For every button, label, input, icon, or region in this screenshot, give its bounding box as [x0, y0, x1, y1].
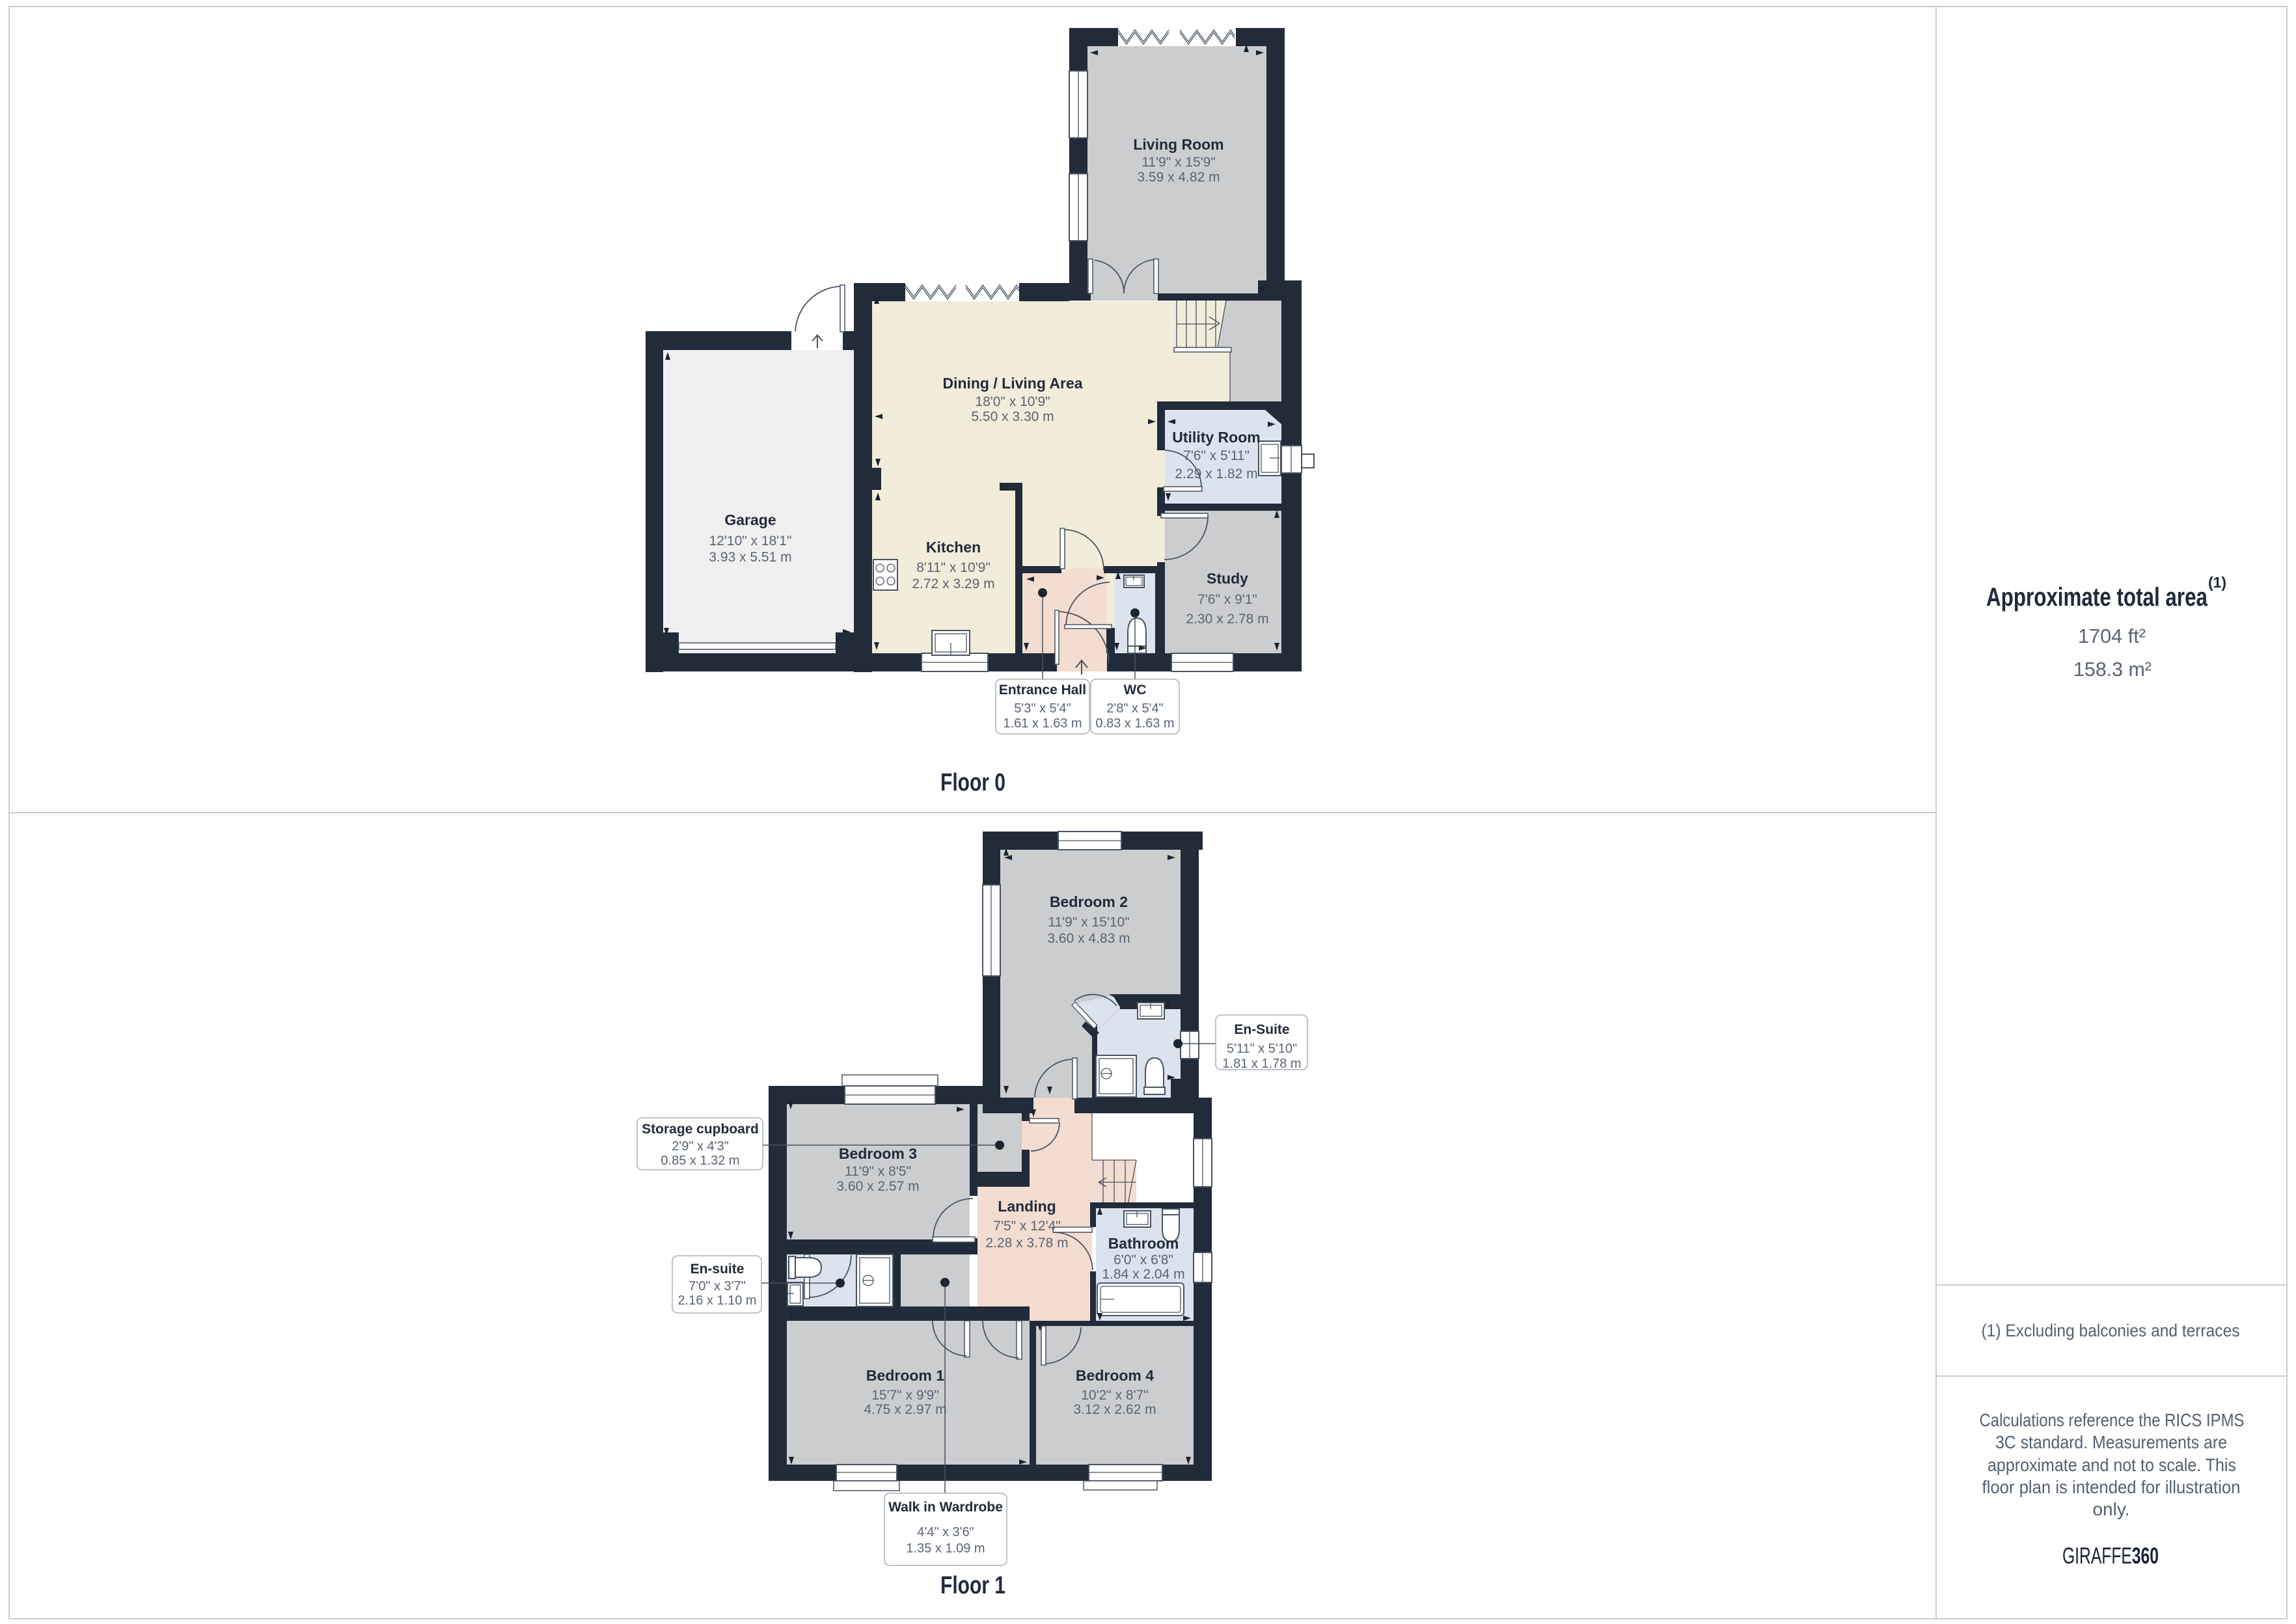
svg-text:5.50 x 3.30 m: 5.50 x 3.30 m — [971, 409, 1054, 424]
svg-text:5'3" x 5'4": 5'3" x 5'4" — [1014, 701, 1071, 716]
svg-text:Bedroom 4: Bedroom 4 — [1076, 1367, 1154, 1384]
svg-text:11'9" x 8'5": 11'9" x 8'5" — [845, 1164, 911, 1179]
svg-text:Approximate total area: Approximate total area — [1986, 583, 2208, 612]
svg-text:Garage: Garage — [724, 511, 776, 528]
svg-text:Storage cupboard: Storage cupboard — [642, 1122, 759, 1137]
svg-text:1.61 x 1.63 m: 1.61 x 1.63 m — [1003, 716, 1082, 731]
svg-text:7'5" x 12'4": 7'5" x 12'4" — [993, 1219, 1061, 1234]
svg-text:8'11" x 10'9": 8'11" x 10'9" — [916, 560, 991, 575]
svg-text:158.3 m²: 158.3 m² — [2073, 658, 2152, 681]
svg-text:7'0" x 3'7": 7'0" x 3'7" — [689, 1279, 745, 1293]
svg-text:Utility Room: Utility Room — [1172, 429, 1260, 446]
svg-text:Bedroom 2: Bedroom 2 — [1050, 893, 1128, 910]
svg-text:3C standard. Measurements are: 3C standard. Measurements are — [1995, 1432, 2227, 1452]
svg-text:12'10" x 18'1": 12'10" x 18'1" — [709, 534, 792, 548]
svg-text:0.85 x 1.32 m: 0.85 x 1.32 m — [661, 1154, 739, 1168]
svg-text:Study: Study — [1207, 570, 1248, 587]
svg-text:1.35 x 1.09 m: 1.35 x 1.09 m — [906, 1541, 985, 1556]
svg-text:(1) Excluding balconies and te: (1) Excluding balconies and terraces — [1982, 1321, 2240, 1340]
svg-text:2.30 x 2.78 m: 2.30 x 2.78 m — [1186, 612, 1268, 627]
svg-text:WC: WC — [1124, 683, 1147, 697]
svg-text:Floor 0: Floor 0 — [940, 769, 1005, 796]
svg-text:2.28 x 3.78 m: 2.28 x 3.78 m — [985, 1236, 1068, 1251]
svg-text:0.83 x 1.63 m: 0.83 x 1.63 m — [1095, 716, 1174, 731]
svg-text:only.: only. — [2092, 1499, 2129, 1519]
svg-text:Entrance Hall: Entrance Hall — [999, 683, 1086, 697]
svg-text:Walk in Wardrobe: Walk in Wardrobe — [888, 1500, 1003, 1515]
svg-text:Dining / Living Area: Dining / Living Area — [942, 375, 1082, 392]
svg-text:Living Room: Living Room — [1133, 136, 1223, 153]
svg-text:18'0" x 10'9": 18'0" x 10'9" — [975, 394, 1050, 409]
svg-text:1.84 x 2.04 m: 1.84 x 2.04 m — [1102, 1267, 1184, 1282]
svg-text:3.93 x 5.51 m: 3.93 x 5.51 m — [709, 550, 791, 565]
svg-text:11'9" x 15'9": 11'9" x 15'9" — [1141, 155, 1216, 170]
svg-text:Bedroom 1: Bedroom 1 — [866, 1367, 944, 1384]
svg-text:2.16 x 1.10 m: 2.16 x 1.10 m — [677, 1293, 756, 1308]
svg-text:GIRAFFE360: GIRAFFE360 — [2062, 1543, 2159, 1569]
svg-text:1.81 x 1.78 m: 1.81 x 1.78 m — [1222, 1057, 1301, 1071]
svg-text:4'4" x 3'6": 4'4" x 3'6" — [917, 1525, 974, 1539]
svg-text:floor plan is intended for ill: floor plan is intended for illustration — [1982, 1477, 2241, 1497]
svg-text:En-suite: En-suite — [690, 1262, 745, 1277]
svg-text:15'7" x 9'9": 15'7" x 9'9" — [871, 1388, 939, 1403]
svg-text:3.60 x 2.57 m: 3.60 x 2.57 m — [836, 1179, 919, 1194]
svg-text:Calculations reference the RIC: Calculations reference the RICS IPMS — [1980, 1410, 2245, 1430]
svg-text:Kitchen: Kitchen — [926, 539, 981, 556]
svg-text:Bathroom: Bathroom — [1108, 1235, 1179, 1252]
svg-text:En-Suite: En-Suite — [1234, 1022, 1289, 1037]
svg-text:2.72 x 3.29 m: 2.72 x 3.29 m — [912, 576, 994, 591]
svg-text:3.59 x 4.82 m: 3.59 x 4.82 m — [1137, 170, 1220, 185]
svg-text:7'6" x 9'1": 7'6" x 9'1" — [1197, 592, 1257, 607]
svg-text:11'9" x 15'10": 11'9" x 15'10" — [1048, 915, 1129, 930]
svg-text:2.29 x 1.82 m: 2.29 x 1.82 m — [1175, 467, 1257, 481]
svg-text:Bedroom 3: Bedroom 3 — [839, 1145, 917, 1162]
svg-text:2'8" x 5'4": 2'8" x 5'4" — [1106, 701, 1163, 716]
svg-text:5'11" x 5'10": 5'11" x 5'10" — [1227, 1042, 1297, 1056]
svg-text:2'9" x 4'3": 2'9" x 4'3" — [672, 1139, 728, 1154]
svg-text:Floor 1: Floor 1 — [940, 1572, 1005, 1599]
svg-text:6'0" x 6'8": 6'0" x 6'8" — [1114, 1252, 1173, 1267]
svg-text:approximate and not to scale.: approximate and not to scale. This — [1988, 1455, 2236, 1475]
svg-text:4.75 x 2.97 m: 4.75 x 2.97 m — [864, 1402, 946, 1417]
svg-text:3.12 x 2.62 m: 3.12 x 2.62 m — [1073, 1402, 1156, 1417]
svg-text:3.60 x 4.83 m: 3.60 x 4.83 m — [1047, 931, 1130, 946]
svg-text:7'6" x 5'11": 7'6" x 5'11" — [1183, 448, 1250, 463]
svg-text:10'2" x 8'7": 10'2" x 8'7" — [1081, 1388, 1149, 1403]
svg-text:(1): (1) — [2208, 574, 2226, 591]
svg-text:Landing: Landing — [998, 1198, 1056, 1215]
svg-text:1704 ft²: 1704 ft² — [2078, 625, 2146, 647]
